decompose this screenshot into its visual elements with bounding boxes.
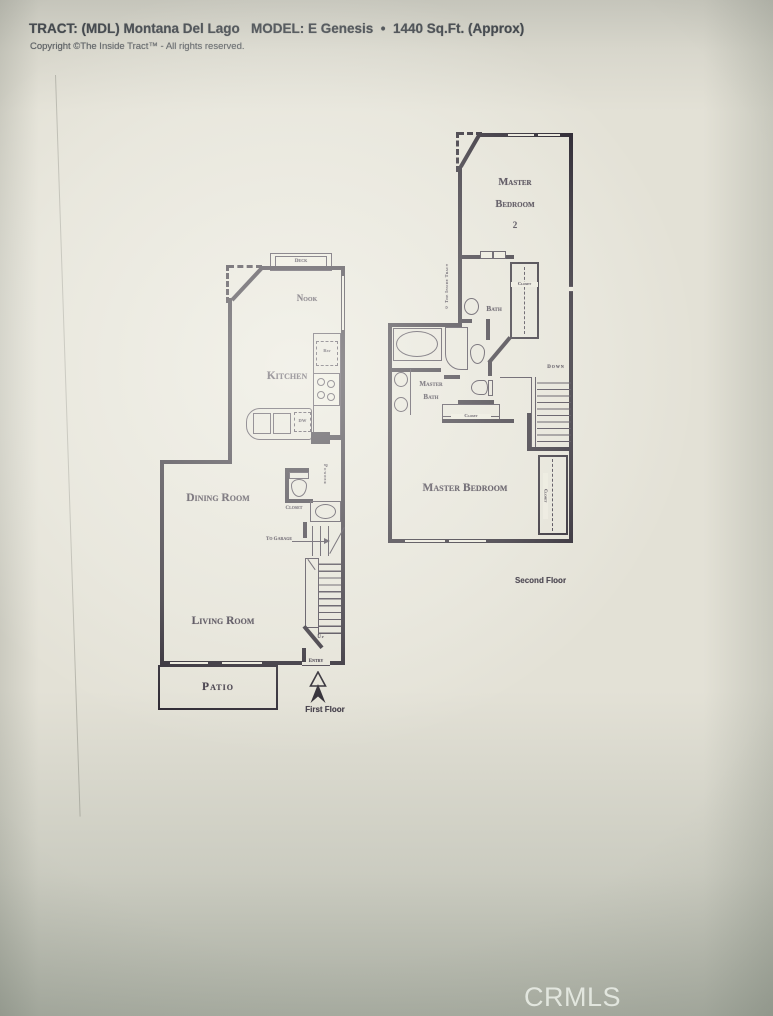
wall [442,419,514,423]
step-line [320,526,321,556]
copyright-line: Copyright ©The Inside Tract™ - All right… [30,41,245,52]
wall [392,368,441,372]
window [405,540,445,542]
first-floor-plan: Deck Ref DW Powder Closet To Garage [155,250,360,725]
window [342,276,344,330]
wall-dashed [228,265,262,268]
closet-shelf-line [524,267,525,334]
double-door [493,251,506,259]
wall [486,319,490,340]
window-tick [569,291,573,292]
wall [458,400,494,404]
wall [231,267,264,302]
wall [160,460,232,464]
wall [388,323,392,543]
dishwasher-label: DW [294,419,311,424]
wall [444,375,460,379]
wall [458,319,472,323]
dining-room-label: Dining Room [181,493,255,505]
tract-credit: © The Inside Tract [445,248,449,326]
entry-threshold [302,665,330,666]
living-room-label: Living Room [186,616,260,628]
window [170,662,208,664]
hall-floor-line [500,377,531,378]
counter-edge [410,369,411,415]
master-bath-label-line2: Bath [409,394,453,401]
stove-burner [327,380,335,388]
wall [160,460,164,665]
under-stair-closet [305,558,319,628]
wall [228,298,232,464]
plan-title: TRACT: (MDL) Montana Del Lago MODEL: E G… [29,21,524,36]
wall [487,336,511,364]
closet-label: Closet [280,506,308,511]
stair-rail [531,377,532,449]
powder-label: Powder [321,453,326,495]
kitchen-sink [253,413,271,434]
window [222,662,262,664]
toilet [291,479,307,497]
wall [569,133,573,543]
bath-label: Bath [478,305,510,313]
closet-label: Closet [511,282,538,287]
shower [445,327,468,370]
wall [330,435,341,440]
wall [459,132,482,168]
master-bedroom-2-label-line3: 2 [475,221,555,230]
wall [285,468,289,502]
second-floor-caption: Second Floor [508,577,573,585]
deck-label: Deck [275,259,327,264]
wall [458,166,462,259]
master-bedroom-2-label-line2: Bedroom [475,200,555,211]
closet-shelf-line [552,459,553,531]
wall-dashed [458,132,482,135]
wall [285,468,309,472]
paper-edge-line [55,75,81,817]
wall [527,413,531,451]
kitchen-label: Kitchen [251,371,323,383]
stair-rail [535,377,536,449]
toilet [471,380,488,395]
window [538,134,560,136]
stair-edge [318,558,319,635]
bathroom-sink [394,372,408,387]
toilet-tank [488,380,493,396]
stairs [319,558,341,635]
window [449,540,486,542]
master-bedroom-label: Master Bedroom [410,483,520,495]
bathroom-sink [464,298,479,315]
kitchen-sink [273,413,291,434]
wall [506,255,514,259]
north-arrow-icon [309,671,327,709]
stove-burner [317,391,325,399]
wall [488,362,492,376]
toilet [470,344,485,364]
patio-label: Patio [158,682,278,694]
master-bedroom-2-label-line1: Master [475,178,555,189]
crmls-watermark: CRMLS [524,982,621,1013]
step-line [312,526,313,556]
entry-label: Entry [299,659,333,664]
stairs [537,377,571,449]
arrow-head-icon [324,538,330,544]
window [508,134,534,136]
nook-label: Nook [285,294,329,303]
wall [458,259,462,323]
wall [527,447,573,451]
window-tick [569,286,573,287]
bathroom-sink [315,504,336,519]
bathroom-sink [394,397,408,412]
up-label: Up [313,636,329,641]
double-door [480,251,493,259]
bathtub [396,331,438,357]
wall [262,266,345,270]
first-floor-caption: First Floor [295,706,355,714]
closet-label: Closet [543,473,548,519]
stove-burner [327,393,335,401]
second-floor-plan: Closet © The Inside Tract Bath Master Ba… [385,128,585,598]
wall [303,522,307,538]
master-bath-label-line1: Master [409,381,453,388]
down-label: Down [542,365,570,370]
toilet [289,472,309,479]
closet-label: Closet [451,414,491,419]
refrigerator-label: Ref [316,349,338,354]
wall [285,499,313,503]
wall [311,432,330,444]
